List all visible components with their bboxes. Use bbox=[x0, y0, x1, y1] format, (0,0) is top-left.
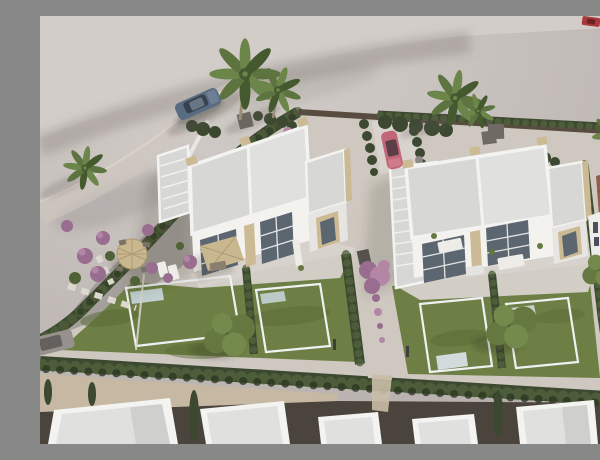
cypress-tree bbox=[88, 382, 96, 406]
neighbour-roof bbox=[412, 414, 478, 444]
side-annex bbox=[306, 148, 352, 252]
stone-pillar bbox=[244, 223, 256, 267]
roof-stone-cap bbox=[469, 146, 480, 156]
neighbour-roof bbox=[516, 400, 598, 444]
street-lamp bbox=[333, 339, 336, 350]
chimney bbox=[481, 130, 497, 145]
aerial-render bbox=[40, 16, 600, 444]
roof-stone-cap bbox=[536, 136, 547, 146]
garage-annex bbox=[548, 160, 592, 264]
street-lamp bbox=[406, 346, 409, 357]
cypress-tree bbox=[493, 390, 503, 438]
cypress-tree bbox=[44, 379, 52, 405]
render-canvas bbox=[40, 16, 600, 444]
neighbour-roof bbox=[318, 412, 382, 444]
cypress-tree bbox=[189, 390, 199, 442]
roof-access-stairs-left bbox=[158, 146, 190, 222]
stone-pillar bbox=[470, 230, 482, 270]
